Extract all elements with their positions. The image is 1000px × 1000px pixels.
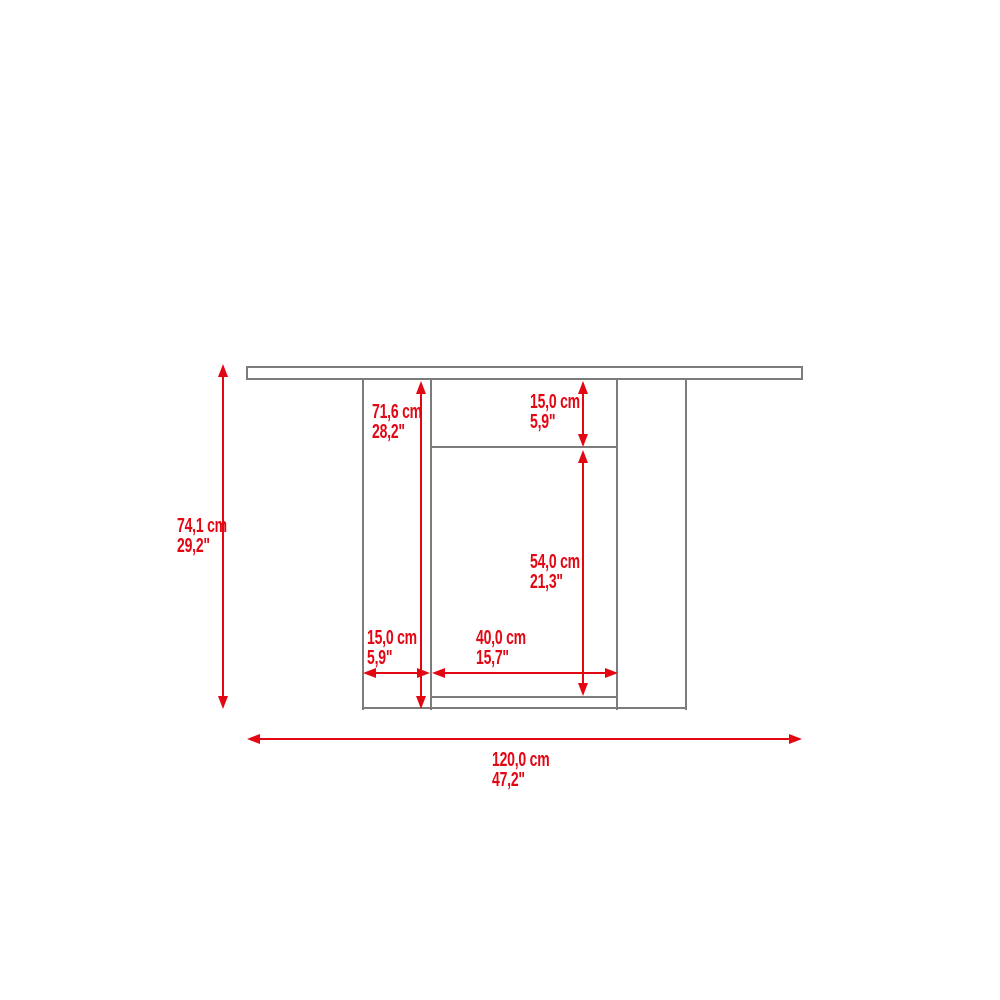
dim-overall-height-label: 74,1 cm 29,2" bbox=[177, 516, 227, 556]
dim-top-compartment-height-label: 15,0 cm 5,9" bbox=[530, 392, 580, 432]
right-panel-inner-edge bbox=[616, 379, 618, 710]
top-shelf-line bbox=[432, 446, 616, 448]
arrowhead-right-icon bbox=[789, 734, 802, 744]
dim-base-height-label: 71,6 cm 28,2" bbox=[372, 402, 422, 442]
dim-value-inches: 21,3" bbox=[530, 572, 580, 592]
arrowhead-down-icon bbox=[218, 696, 228, 709]
arrowhead-down-icon bbox=[578, 434, 588, 447]
dim-middle-opening-width-label: 40,0 cm 15,7" bbox=[476, 628, 526, 668]
dim-value-cm: 54,0 cm bbox=[530, 552, 580, 572]
dim-value-inches: 15,7" bbox=[476, 648, 526, 668]
dim-value-inches: 5,9" bbox=[367, 648, 417, 668]
left-panel-inner-edge bbox=[430, 379, 432, 710]
dimension-line bbox=[257, 738, 792, 740]
dim-value-cm: 74,1 cm bbox=[177, 516, 227, 536]
dim-value-cm: 15,0 cm bbox=[367, 628, 417, 648]
left-panel-outer-edge bbox=[362, 379, 364, 710]
base-line bbox=[362, 707, 687, 709]
dim-value-cm: 71,6 cm bbox=[372, 402, 422, 422]
dimension-line bbox=[373, 672, 420, 674]
right-panel-outer-edge bbox=[685, 379, 687, 710]
dim-value-cm: 15,0 cm bbox=[530, 392, 580, 412]
dim-value-inches: 47,2" bbox=[492, 770, 549, 790]
dim-value-inches: 29,2" bbox=[177, 536, 227, 556]
arrowhead-down-icon bbox=[578, 683, 588, 696]
dim-value-cm: 40,0 cm bbox=[476, 628, 526, 648]
dim-value-inches: 28,2" bbox=[372, 422, 422, 442]
dimension-line bbox=[442, 672, 608, 674]
dim-value-cm: 120,0 cm bbox=[492, 750, 549, 770]
arrowhead-right-icon bbox=[605, 668, 618, 678]
arrowhead-right-icon bbox=[417, 668, 430, 678]
dimension-line bbox=[582, 391, 584, 437]
dim-middle-opening-height-label: 54,0 cm 21,3" bbox=[530, 552, 580, 592]
dimension-diagram: 74,1 cm 29,2" 71,6 cm 28,2" 15,0 cm 5,9"… bbox=[0, 0, 1000, 1000]
dimension-line bbox=[582, 460, 584, 686]
bottom-shelf-line bbox=[432, 696, 616, 698]
dim-overall-width-label: 120,0 cm 47,2" bbox=[492, 750, 549, 790]
tabletop bbox=[246, 366, 803, 380]
dim-value-inches: 5,9" bbox=[530, 412, 580, 432]
arrowhead-down-icon bbox=[416, 696, 426, 709]
dim-side-panel-width-label: 15,0 cm 5,9" bbox=[367, 628, 417, 668]
